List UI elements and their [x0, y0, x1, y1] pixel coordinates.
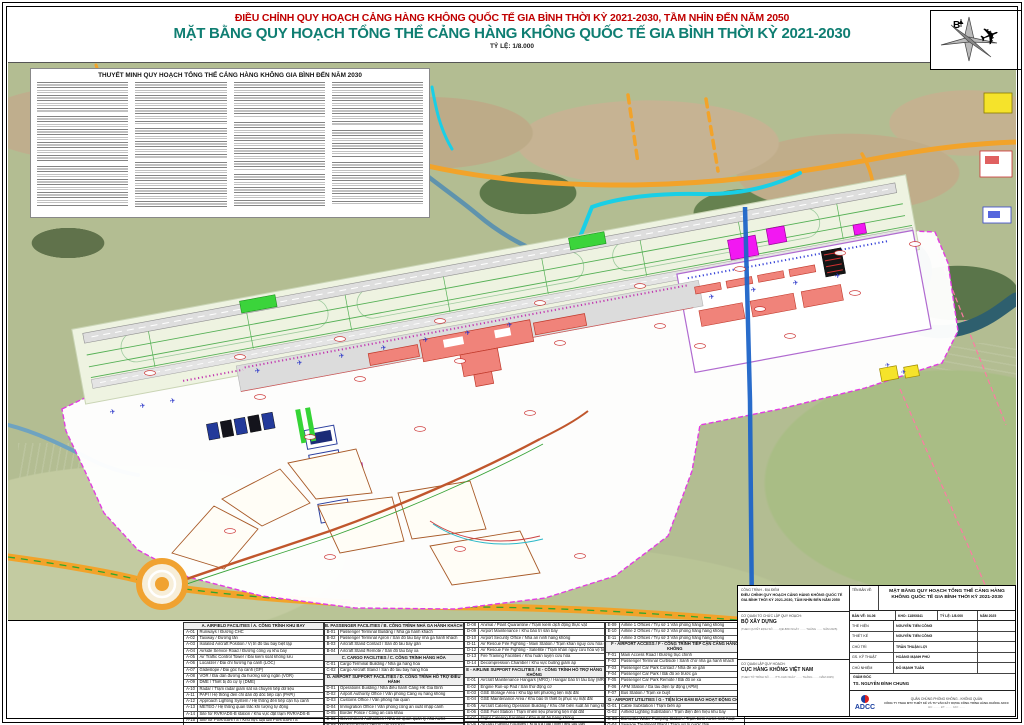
legend-row: A-15Site for PSR/SSR/TS / Khu vực đặt đà…	[184, 718, 323, 723]
legend-column-efg: E-09Airline 1 Offices / Trụ sở 1 Văn phò…	[605, 622, 746, 725]
drawing-title-sub: ĐIỀU CHỈNH QUY HOẠCH CẢNG HÀNG KHÔNG QUỐ…	[8, 12, 1016, 24]
signature-row: CHỦ NHIỆMĐỖ MẠNH TUẤN	[850, 663, 1015, 674]
meta-size: KHỔ: 1189X841	[896, 611, 938, 620]
compass-box: B ✈	[930, 10, 1022, 70]
legend-section-header: D. AIRPORT SUPPORT FACILITIES / D. CÔNG …	[325, 675, 464, 686]
drawing-name: MẶT BẰNG QUY HOẠCH TỔNG THỂ CẢNG HÀNG KH…	[879, 586, 1015, 610]
company-line3: ĐC: …… · ĐT: …… · FAX: ……	[880, 706, 1013, 709]
legend-column-a: A. AIRFIELD FACILITIES / A. CÔNG TRÌNH K…	[183, 622, 324, 725]
title-block: CÔNG TRÌNH - ĐỊA ĐIỂM ĐIỀU CHỈNH QUY HOẠ…	[737, 585, 1016, 717]
title-bar: ĐIỀU CHỈNH QUY HOẠCH CẢNG HÀNG KHÔNG QUỐ…	[8, 9, 1016, 61]
org2-note: (THEO TỜ TRÌNH SỐ ……/TTr-CHK NGÀY …… THÁ…	[741, 675, 846, 679]
drawing-scale: TỶ LỆ: 1/8.000	[8, 43, 1016, 50]
project-label: CÔNG TRÌNH - ĐỊA ĐIỂM	[741, 588, 846, 592]
meta-year: NĂM 2025	[978, 611, 1015, 620]
org1-note: (THEO QUYẾT ĐỊNH SỐ ……/QĐ-BXD NGÀY …… TH…	[741, 627, 846, 631]
org1-label: CƠ QUAN TỔ CHỨC LẬP QUY HOẠCH:	[741, 614, 846, 618]
legend-section-header: F - AIRPORT ACCESS / F - CÔNG TRÌNH TIẾP…	[606, 642, 745, 653]
drawing-meta-row: BẢN VẼ: 04-06 KHỔ: 1189X841 TỶ LỆ: 1/8.0…	[850, 611, 1015, 621]
legend-column-de: D-08Animal / Plant Quarantine / Trạm kiể…	[464, 622, 605, 725]
company-line2: CÔNG TY TNHH MTV THIẾT KẾ VÀ TƯ VẤN XÂY …	[880, 702, 1013, 705]
org2-name: CỤC HÀNG KHÔNG VIỆT NAM	[741, 667, 846, 673]
notes-microtext	[37, 82, 423, 208]
signature-rows: THỂ HIỆNNGUYỄN TIẾN CÔNGTHIẾT KẾNGUYỄN T…	[850, 621, 1015, 674]
cyan-stub	[432, 87, 452, 149]
signature-row: THIẾT KẾNGUYỄN TIẾN CÔNG	[850, 632, 1015, 643]
notes-title: THUYẾT MINH QUY HOẠCH TỔNG THỂ CẢNG HÀNG…	[37, 72, 423, 79]
meta-scale: TỶ LỆ: 1/8.000	[938, 611, 978, 620]
director-name: TS. NGUYỄN ĐÌNH CHUNG	[853, 681, 1012, 686]
compass-rose-icon: B ✈	[931, 11, 1021, 69]
roundabout	[139, 561, 185, 607]
signature-row: CHỦ TRÌTRẦN THUẬN LỢI	[850, 642, 1015, 653]
signature-row: THỂ HIỆNNGUYỄN TIẾN CÔNG	[850, 621, 1015, 632]
adcc-logo: ADCC	[852, 695, 878, 711]
legend-section-header: E - AIRLINE SUPPORT FACILITIES / E - CÔN…	[465, 667, 604, 678]
legend-section-header: B. PASSENGER FACILITIES / B. CÔNG TRÌNH …	[325, 623, 464, 630]
legend-section-header: G - AIRPORT UTILITIES / G - TIỆN ÍCH ĐẢM…	[606, 697, 745, 704]
director-label: GIÁM ĐỐC	[853, 675, 1012, 679]
meta-sheet: BẢN VẼ: 04-06	[850, 611, 896, 620]
legend-section-header: C. CARGO FACILITIES / C. CÔNG TRÌNH HÀNG…	[325, 655, 464, 662]
legend-section-header: A. AIRFIELD FACILITIES / A. CÔNG TRÌNH K…	[184, 623, 323, 630]
drawing-sheet: ✈✈ ✈✈ ✈✈ ✈ ✈✈ ✈✈ ✈✈ ✈ ✈✈ ĐIỀU CHỈNH QUY …	[0, 0, 1024, 725]
drawing-title-main: MẶT BẰNG QUY HOẠCH TỔNG THỂ CẢNG HÀNG KH…	[8, 25, 1016, 42]
org1-name: BỘ XÂY DỰNG	[741, 619, 846, 625]
map-callout-chips	[980, 93, 1012, 223]
signature-row: GS. KỸ THUẬTHOÀNG MẠNH PHÚ	[850, 653, 1015, 664]
project-name: ĐIỀU CHỈNH QUY HOẠCH CẢNG HÀNG KHÔNG QUỐ…	[741, 593, 846, 602]
notes-panel: THUYẾT MINH QUY HOẠCH TỔNG THỂ CẢNG HÀNG…	[30, 68, 430, 218]
drawing-name-label: TÊN BẢN VẼ:	[850, 586, 879, 610]
adcc-logo-mark	[861, 695, 869, 703]
org2-label: CƠ QUAN LẬP QUY HOẠCH:	[741, 662, 846, 666]
legend-column-bcd: B. PASSENGER FACILITIES / B. CÔNG TRÌNH …	[324, 622, 465, 725]
legend-table: A. AIRFIELD FACILITIES / A. CÔNG TRÌNH K…	[183, 622, 745, 725]
